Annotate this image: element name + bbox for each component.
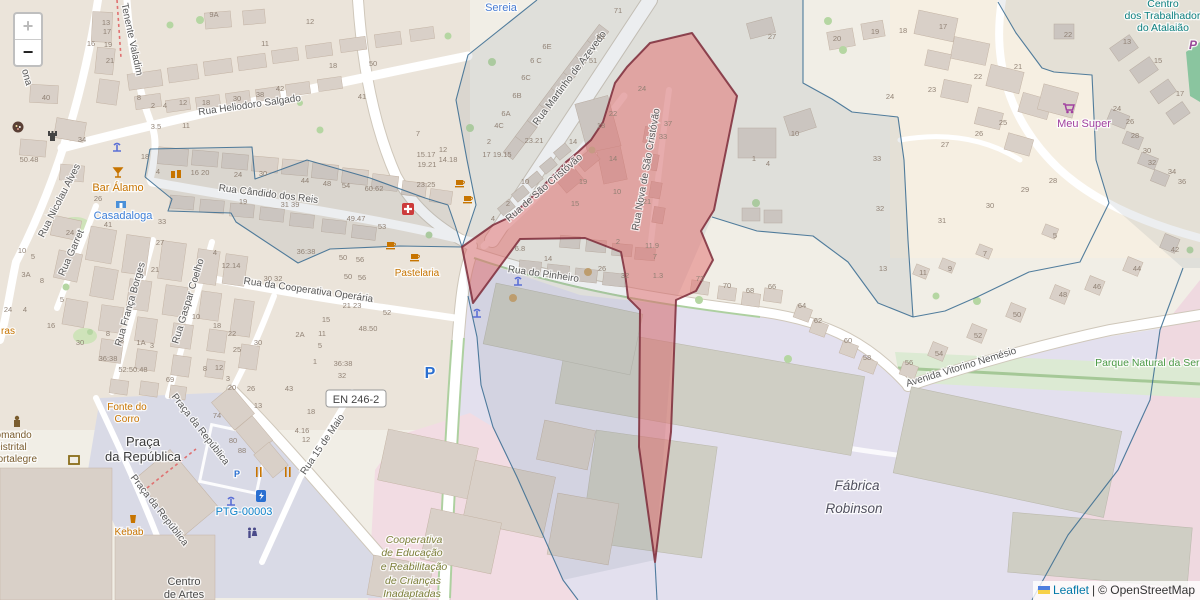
housenumber: 32	[876, 204, 884, 213]
housenumber: 34	[78, 135, 86, 144]
housenumber: 15	[1154, 56, 1162, 65]
housenumber: 26	[1126, 117, 1134, 126]
place-label: e Reabilitação	[381, 561, 448, 573]
housenumber: 30	[254, 338, 262, 347]
place-label: Parque Natural da Serra	[1095, 357, 1200, 369]
housenumber: 13	[254, 401, 262, 410]
housenumber: 6A	[501, 109, 510, 118]
housenumber: 18	[307, 407, 315, 416]
housenumber: 53	[378, 222, 386, 231]
housenumber: 8	[40, 276, 44, 285]
housenumber: 42	[1171, 245, 1179, 254]
housenumber: 30 32	[264, 274, 283, 283]
housenumber: 27	[768, 32, 776, 41]
housenumber: 22	[609, 109, 617, 118]
leaflet-link[interactable]: Leaflet	[1053, 583, 1089, 597]
housenumber: 8	[137, 93, 141, 102]
place-label: do Atalaião	[1137, 22, 1189, 34]
place-label: dos Trabalhadores	[1125, 10, 1200, 22]
housenumber: 41	[358, 92, 366, 101]
housenumber: 26	[975, 129, 983, 138]
housenumber: 17	[1176, 89, 1184, 98]
housenumber: 6B	[512, 91, 521, 100]
place-label: Centro	[167, 576, 200, 588]
housenumber: 16 20	[191, 168, 210, 177]
housenumber: 27	[941, 140, 949, 149]
housenumber: 12	[306, 17, 314, 26]
games-icon	[13, 122, 24, 133]
housenumber: 26	[247, 384, 255, 393]
housenumber: 50	[1013, 310, 1021, 319]
housenumber: 4	[23, 305, 27, 314]
housenumber: 21 23	[343, 301, 362, 310]
attribution-bar: Leaflet|© OpenStreetMap	[1033, 581, 1200, 600]
housenumber: 32	[621, 271, 629, 280]
housenumber: 48	[323, 179, 331, 188]
attribution-separator: |	[1092, 583, 1095, 597]
housenumber: 50.48	[20, 155, 39, 164]
housenumber: 17 19.15	[482, 150, 511, 159]
housenumber: 32	[1148, 158, 1156, 167]
housenumber: 25	[233, 345, 241, 354]
housenumber: 30	[76, 338, 84, 347]
housenumber: 17	[939, 22, 947, 31]
housenumber: 56	[358, 273, 366, 282]
place-label: Comando	[0, 430, 32, 441]
housenumber: 6C	[521, 73, 531, 82]
housenumber: 54	[342, 181, 350, 190]
housenumber: 71	[614, 6, 622, 15]
place-label: de Crianças	[385, 575, 442, 587]
housenumber: 12	[439, 145, 447, 154]
housenumber: 13	[1123, 37, 1131, 46]
housenumber: 22	[974, 72, 982, 81]
housenumber: 29	[1021, 185, 1029, 194]
zoom-in-button[interactable]: +	[15, 14, 41, 40]
housenumber: 14	[609, 154, 617, 163]
cafe-icon	[386, 242, 396, 249]
police-icon	[14, 416, 20, 427]
housenumber: 6.8	[515, 244, 525, 253]
zoom-out-button[interactable]: −	[15, 40, 41, 65]
housenumber: 25	[999, 118, 1007, 127]
housenumber: 4C	[494, 121, 504, 130]
housenumber: 23.21	[525, 136, 544, 145]
place-label: Casadaloga	[94, 210, 154, 222]
housenumber: 40	[42, 93, 50, 102]
housenumber: 11	[919, 268, 927, 277]
housenumber: 51	[589, 56, 597, 65]
housenumber: 16	[87, 39, 95, 48]
housenumber: 30	[986, 201, 994, 210]
housenumber: 3.5	[151, 122, 161, 131]
housenumber: 16	[47, 321, 55, 330]
place-label: de Artes	[164, 589, 205, 600]
housenumber: 26	[94, 194, 102, 203]
housenumber: 12	[215, 363, 223, 372]
place-label: Distrital	[0, 442, 27, 453]
housenumber: 42	[276, 84, 284, 93]
housenumber: 14	[544, 254, 552, 263]
place-label: Praça	[126, 434, 161, 449]
housenumber: 28	[1131, 131, 1139, 140]
housenumber: 5	[31, 252, 35, 261]
place-label: Corro	[114, 414, 139, 425]
housenumber: 18	[213, 321, 221, 330]
cafe-icon	[455, 180, 465, 187]
housenumber: 5	[318, 341, 322, 350]
housenumber: 19	[239, 197, 247, 206]
housenumber: 10	[192, 312, 200, 321]
place-label: Kebab	[115, 527, 144, 538]
housenumber: 22	[228, 329, 236, 338]
housenumber: 2	[506, 199, 510, 208]
housenumber: 2A	[295, 330, 304, 339]
housenumber: 19.21	[418, 160, 437, 169]
cafe-icon	[410, 254, 420, 261]
first-aid-icon	[402, 203, 414, 215]
housenumber: 7	[416, 129, 420, 138]
housenumber: 1A	[136, 338, 145, 347]
housenumber: 3	[150, 341, 154, 350]
housenumber: 48	[1059, 290, 1067, 299]
housenumber: 12	[302, 435, 310, 444]
housenumber: 2	[151, 101, 155, 110]
housenumber: 23.25	[417, 180, 436, 189]
place-label: P	[425, 365, 436, 382]
housenumber: 10	[613, 187, 621, 196]
housenumber: 15	[322, 315, 330, 324]
housenumber: 58	[863, 353, 871, 362]
housenumber: 12	[179, 98, 187, 107]
housenumber: 66	[768, 282, 776, 291]
housenumber: 50	[369, 59, 377, 68]
place-label: P	[1189, 38, 1198, 52]
housenumber: 18	[329, 61, 337, 70]
housenumber: 4	[766, 159, 770, 168]
housenumber: 36:38	[297, 247, 316, 256]
housenumber: 30	[233, 94, 241, 103]
housenumber: 14.18	[439, 155, 458, 164]
housenumber: 2	[487, 137, 491, 146]
housenumber: 3	[120, 336, 124, 345]
housenumber: 61	[597, 32, 605, 41]
housenumber: 10	[18, 246, 26, 255]
housenumber: 88	[238, 446, 246, 455]
map-canvas[interactable]: EN 246-2 Rua Heliodoro SalgadoTenente Va…	[0, 0, 1200, 600]
housenumber: 17	[103, 27, 111, 36]
housenumber: 9A	[209, 10, 218, 19]
housenumber: 4	[156, 167, 160, 176]
housenumber: 30	[259, 169, 267, 178]
housenumber: 24	[234, 170, 242, 179]
housenumber: 60	[844, 336, 852, 345]
housenumber: 4	[213, 248, 217, 257]
housenumber: 72	[696, 274, 704, 283]
housenumber: 7	[983, 249, 987, 258]
housenumber: 56	[356, 255, 364, 264]
housenumber: 24	[66, 228, 74, 237]
housenumber: 36:38	[99, 354, 118, 363]
housenumber: 36	[1178, 177, 1186, 186]
housenumber: 19	[871, 27, 879, 36]
housenumber: 43	[285, 384, 293, 393]
housenumber: 50	[344, 272, 352, 281]
place-label: Meu Super	[1057, 118, 1111, 130]
place-label: Sereia	[485, 2, 518, 14]
shopfront-icon	[116, 201, 126, 208]
housenumber: 13	[879, 264, 887, 273]
place-label: Inadaptadas	[383, 588, 442, 600]
housenumber: 54	[935, 349, 943, 358]
housenumber: 4.16	[295, 426, 310, 435]
housenumber: 19	[104, 40, 112, 49]
housenumber: 1	[313, 357, 317, 366]
place-label: de Educação	[381, 547, 442, 559]
housenumber: 31	[938, 216, 946, 225]
housenumber: 14	[569, 137, 577, 146]
place-label: Portalegre	[0, 454, 38, 465]
housenumber: 24	[638, 84, 646, 93]
housenumber: 62	[814, 316, 822, 325]
housenumber: 22	[1064, 30, 1072, 39]
housenumber: 24	[4, 305, 12, 314]
housenumber: 11	[261, 39, 269, 48]
place-label: P	[234, 469, 240, 479]
housenumber: 11.9	[645, 241, 659, 250]
housenumber: 7	[653, 252, 657, 261]
housenumber: 23	[928, 85, 936, 94]
housenumber: 13	[102, 18, 110, 27]
housenumber: 18	[899, 26, 907, 35]
fast-food-icon	[130, 515, 136, 523]
housenumber: 34	[1168, 167, 1176, 176]
housenumber: 9	[948, 264, 952, 273]
housenumber: 5	[60, 295, 64, 304]
housenumber: 26	[598, 264, 606, 273]
place-label: Fábrica	[834, 478, 880, 493]
housenumber: 3	[226, 374, 230, 383]
housenumber: 6E	[542, 42, 551, 51]
housenumber: 2	[616, 237, 620, 246]
place-label: PTG-00003	[216, 506, 273, 518]
housenumber: 10	[521, 177, 529, 186]
housenumber: 21	[1014, 62, 1022, 71]
housenumber: 44	[1133, 264, 1141, 273]
housenumber: 44	[301, 176, 309, 185]
housenumber: 64	[798, 301, 806, 310]
housenumber: 32	[338, 371, 346, 380]
housenumber: 12.14	[222, 261, 241, 270]
housenumber: 33	[158, 217, 166, 226]
housenumber: 37	[664, 119, 672, 128]
housenumber: 18	[597, 121, 605, 130]
road-ref-badge: EN 246-2	[326, 390, 386, 407]
housenumber: 4	[491, 214, 495, 223]
housenumber: 52	[974, 331, 982, 340]
housenumber: 21	[151, 265, 159, 274]
housenumber: 68	[746, 286, 754, 295]
housenumber: 27	[156, 238, 164, 247]
housenumber: 48.50	[359, 324, 378, 333]
housenumber: 20	[833, 34, 841, 43]
housenumber: 8	[203, 364, 207, 373]
place-label: Cooperativa	[386, 534, 443, 546]
housenumber: 8	[106, 329, 110, 338]
housenumber: 80	[229, 436, 237, 445]
housenumber: 19	[579, 177, 587, 186]
housenumber: 30	[1143, 146, 1151, 155]
housenumber: 24	[1113, 104, 1121, 113]
place-label: Fonte do	[107, 402, 147, 413]
map-tiles: EN 246-2 Rua Heliodoro SalgadoTenente Va…	[0, 0, 1200, 600]
housenumber: 33	[873, 154, 881, 163]
housenumber: 18	[202, 98, 210, 107]
housenumber: 52	[383, 308, 391, 317]
place-label: Centro	[1147, 0, 1179, 10]
housenumber: 4	[163, 101, 167, 110]
ua-flag-icon	[1038, 586, 1050, 594]
housenumber: 20	[228, 383, 236, 392]
housenumber: 24	[886, 92, 894, 101]
housenumber: 18	[141, 152, 149, 161]
housenumber: 33	[659, 132, 667, 141]
housenumber: 3A	[21, 270, 30, 279]
housenumber: 21	[643, 197, 651, 206]
housenumber: 36:38	[334, 359, 353, 368]
housenumber: 31 39	[281, 200, 300, 209]
housenumber: 15.17	[417, 150, 436, 159]
housenumber: 49.47	[347, 214, 366, 223]
place-label: ras	[1, 326, 15, 337]
housenumber: 70	[723, 281, 731, 290]
place-label: da República	[105, 449, 182, 464]
housenumber: 15	[571, 199, 579, 208]
housenumber: 38	[256, 90, 264, 99]
road-ref-text: EN 246-2	[333, 394, 379, 406]
housenumber: 6 C	[530, 56, 542, 65]
housenumber: 11	[182, 121, 190, 130]
cafe-icon	[463, 196, 473, 203]
housenumber: 50	[339, 253, 347, 262]
housenumber: 1.3	[653, 271, 663, 280]
place-label: Bar Álamo	[92, 181, 143, 194]
housenumber: 11	[318, 329, 326, 338]
charging-station-icon	[256, 490, 266, 502]
housenumber: 5	[1053, 231, 1057, 240]
osm-attribution-text: © OpenStreetMap	[1098, 583, 1195, 597]
housenumber: 60.62	[365, 184, 384, 193]
housenumber: 1	[752, 154, 756, 163]
place-label: Robinson	[825, 501, 882, 516]
housenumber: 10	[791, 129, 799, 138]
housenumber: 69	[166, 375, 174, 384]
housenumber: 21	[106, 56, 114, 65]
housenumber: 28	[1049, 176, 1057, 185]
zoom-control: + −	[13, 12, 43, 67]
housenumber: 46	[1093, 282, 1101, 291]
housenumber: 52:50.48	[118, 365, 147, 374]
housenumber: 74	[213, 411, 221, 420]
housenumber: 56	[905, 358, 913, 367]
place-label: Pastelaria	[395, 268, 440, 279]
